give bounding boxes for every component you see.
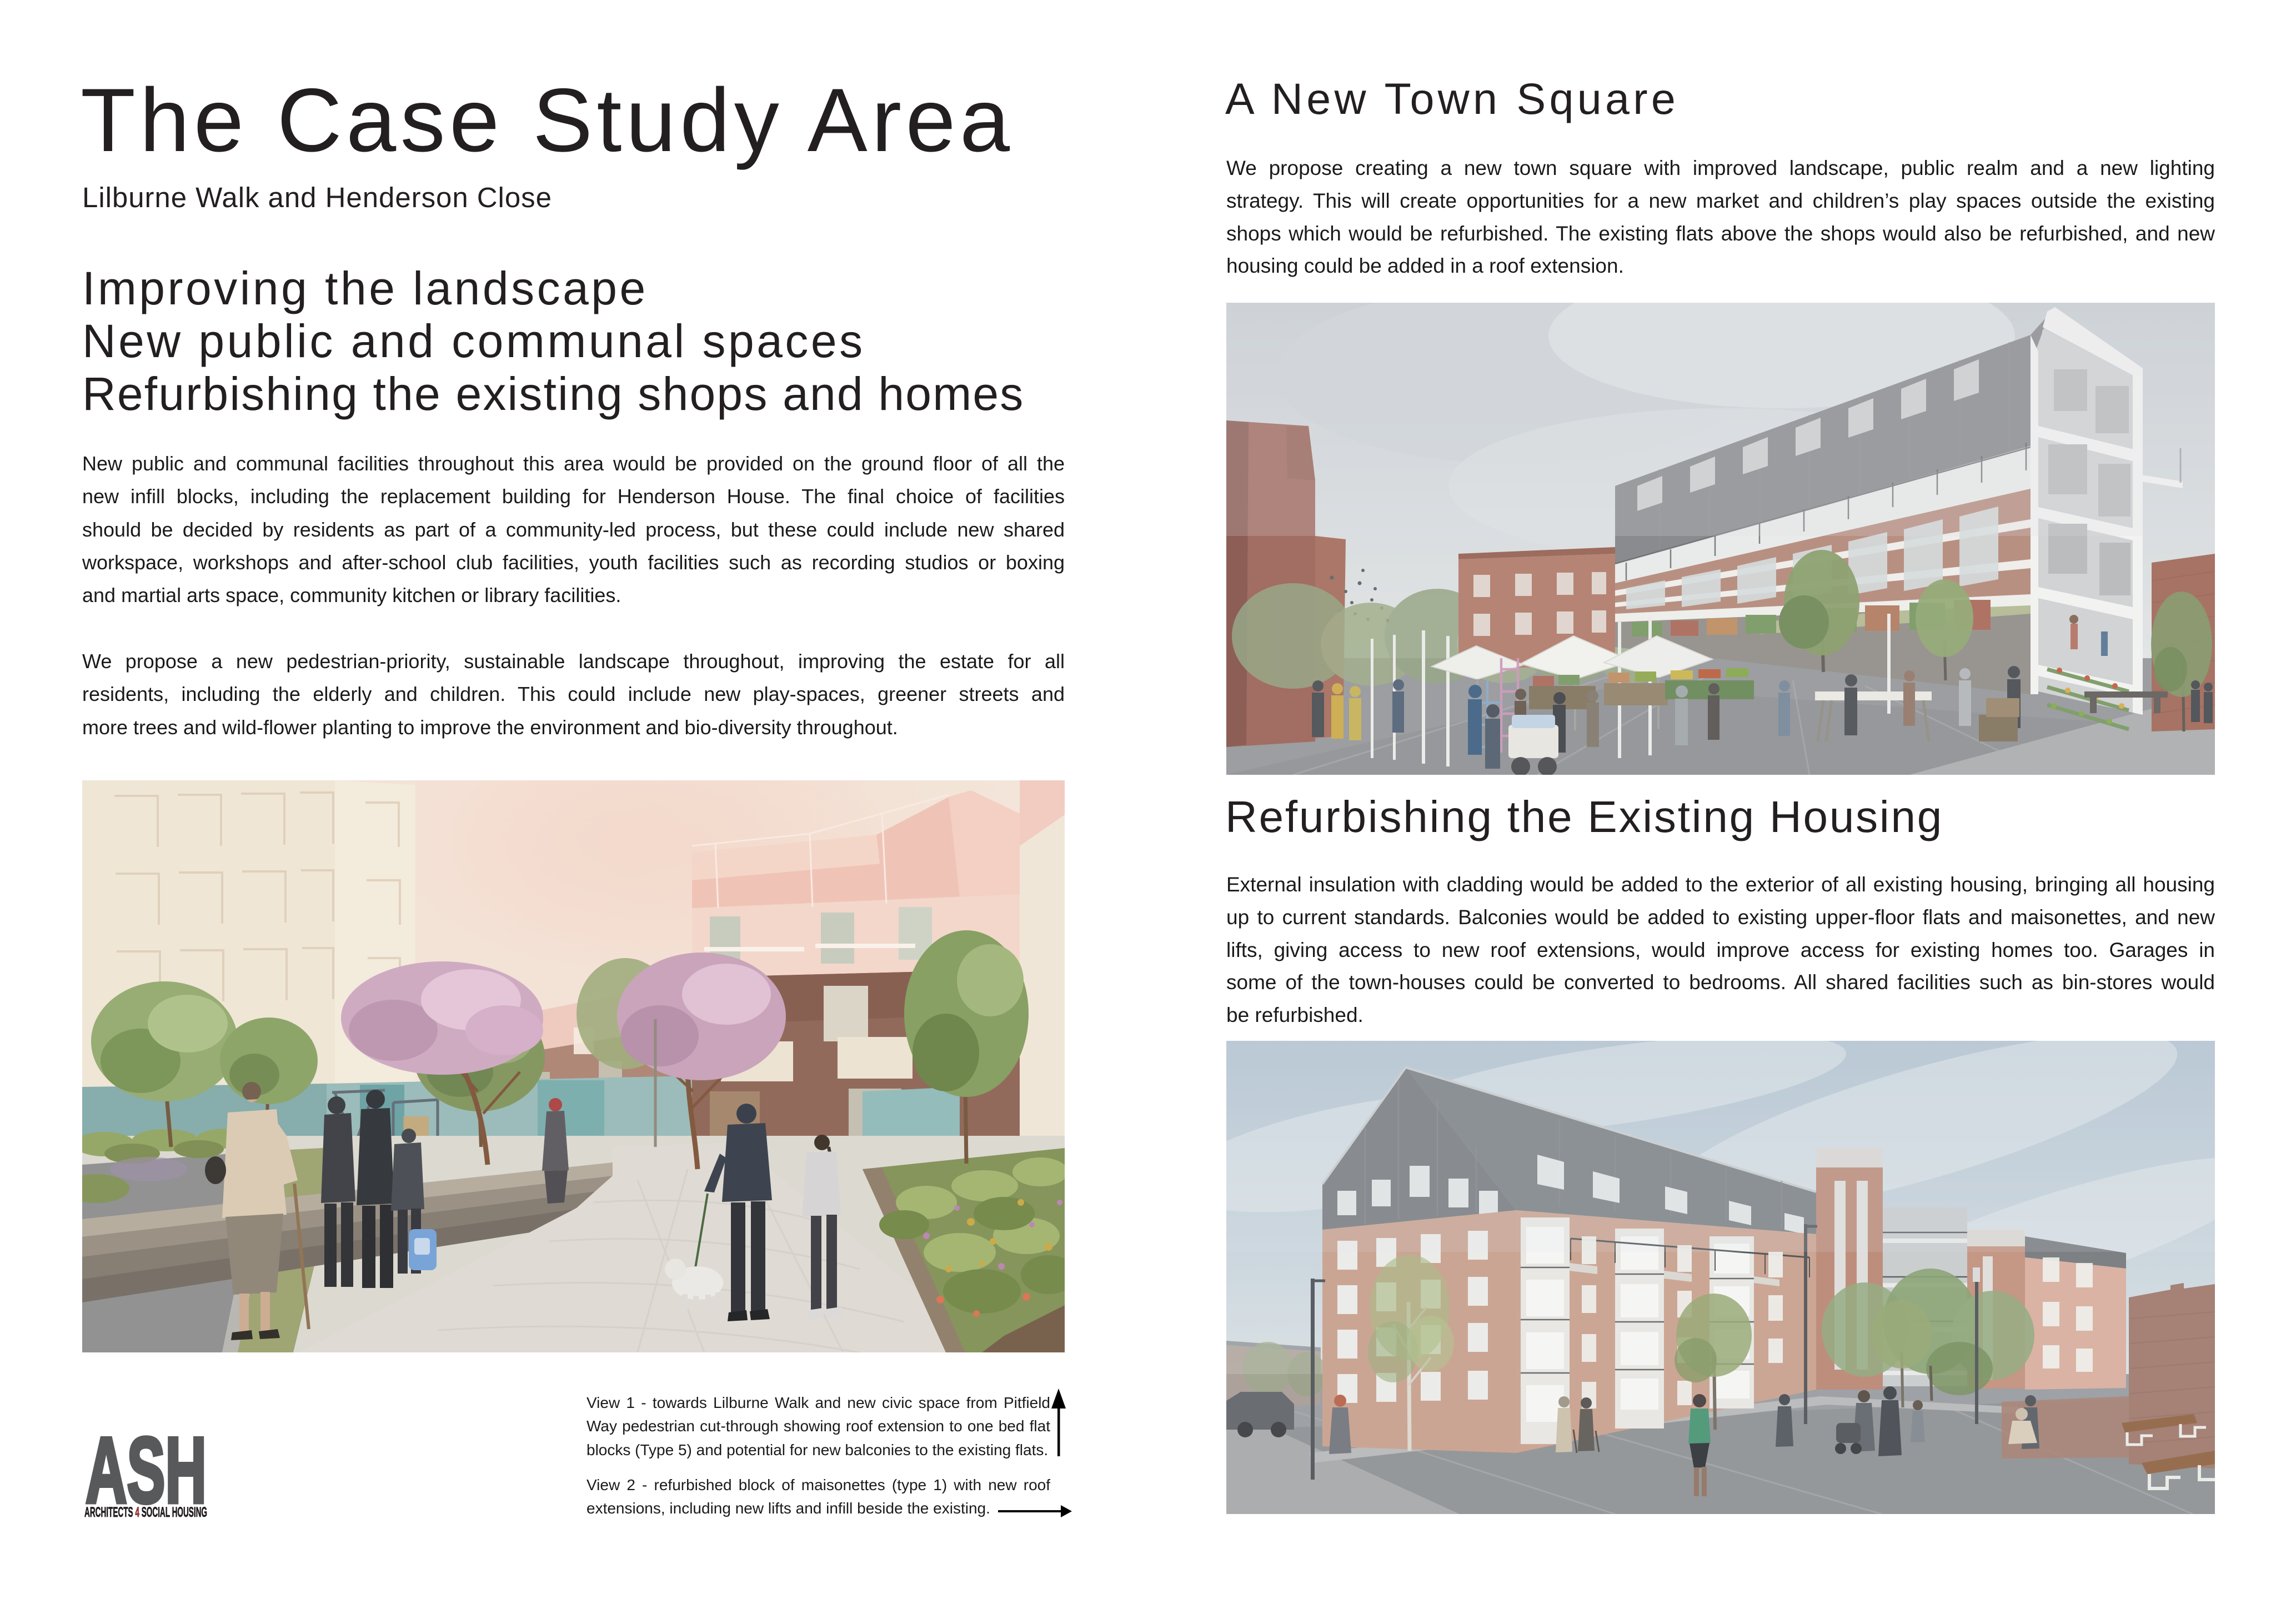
svg-text:ARCHITECTS 4 SOCIAL HOUSING: ARCHITECTS 4 SOCIAL HOUSING: [84, 1505, 207, 1519]
